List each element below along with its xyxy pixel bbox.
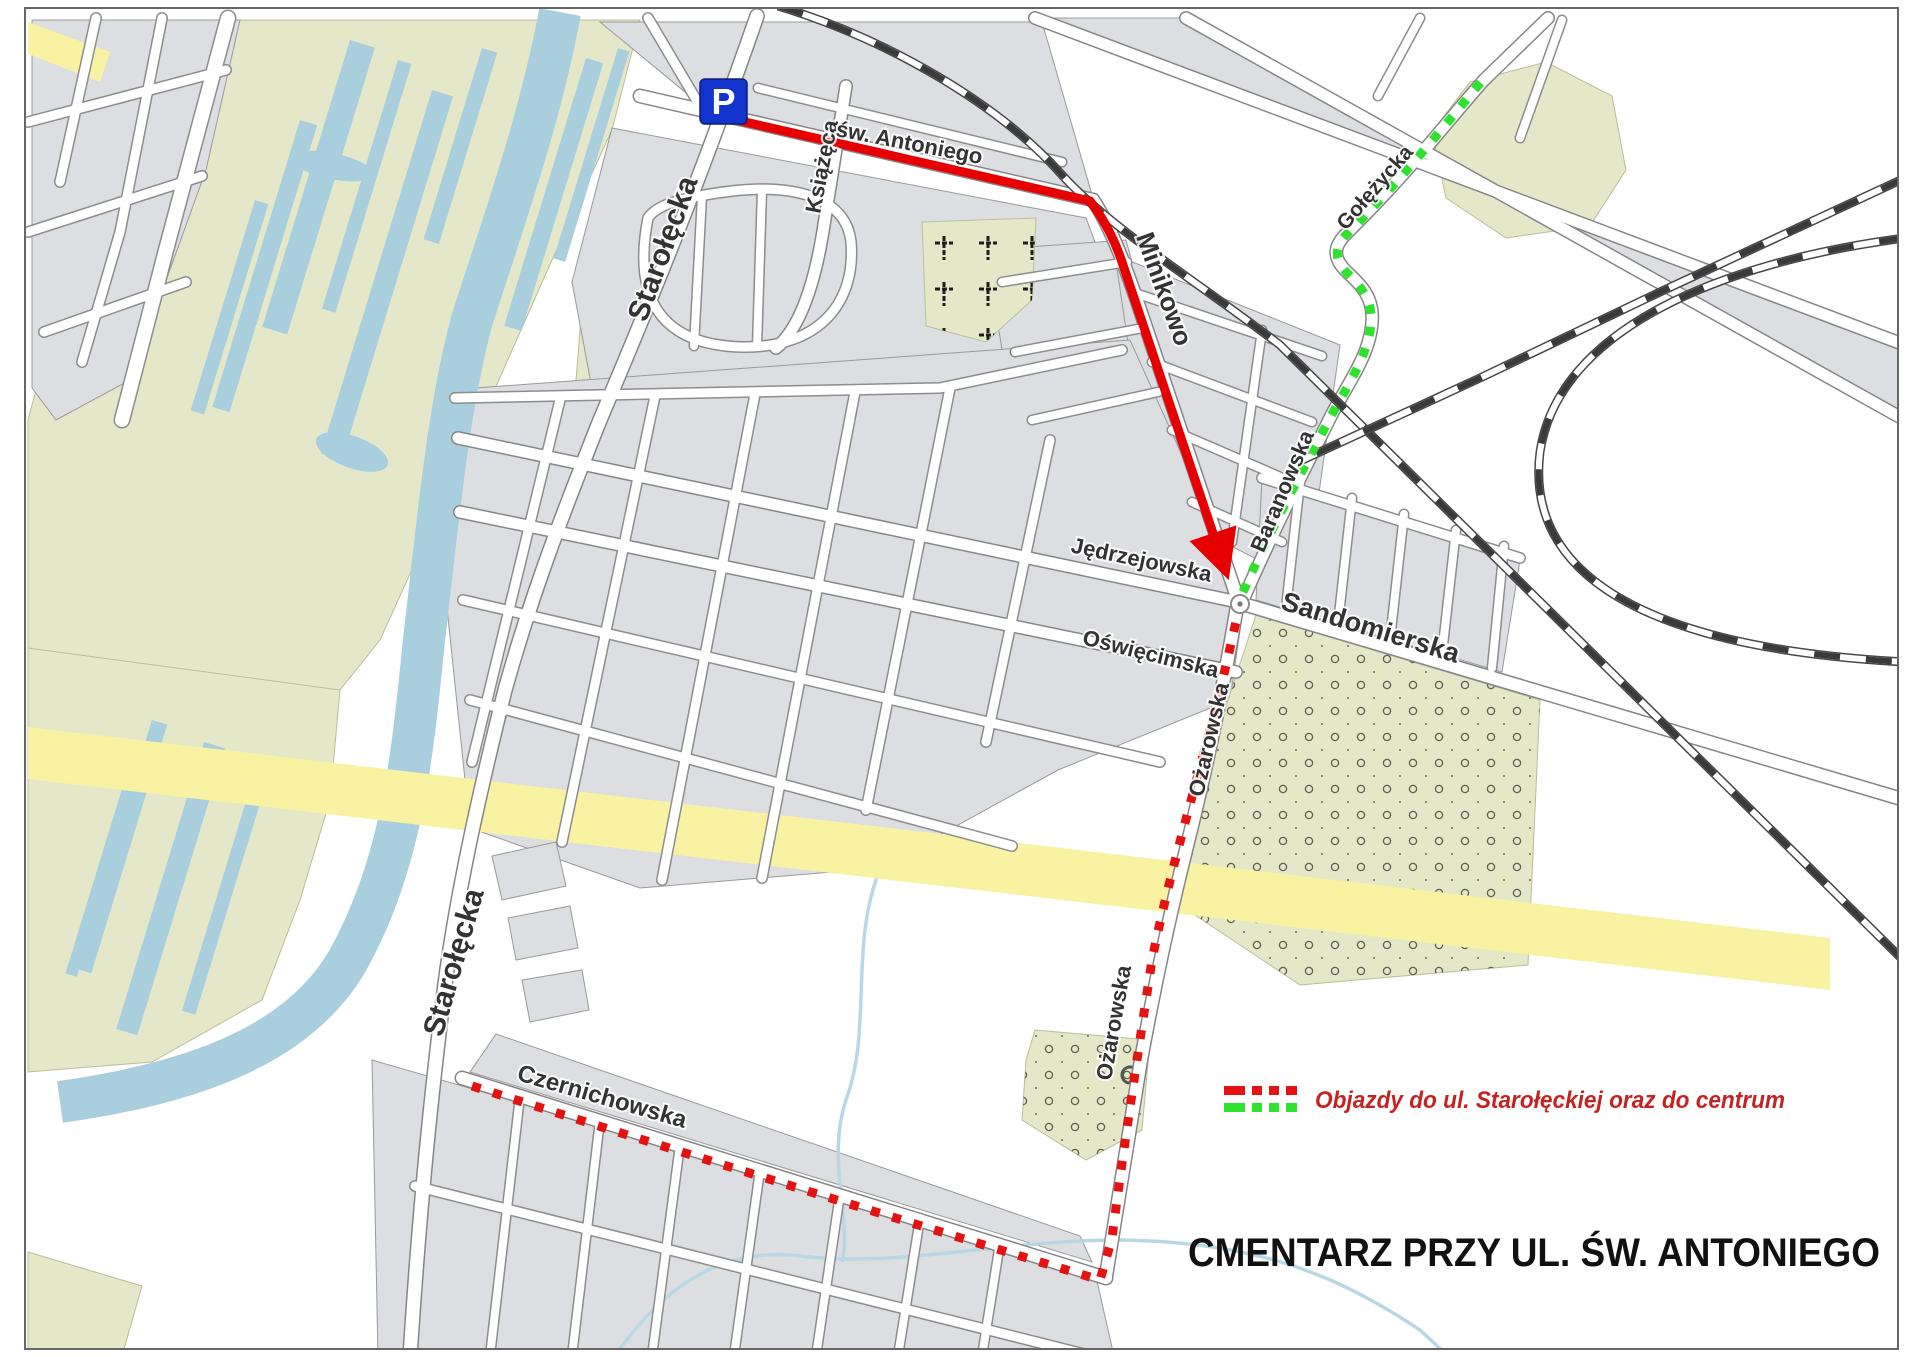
- legend-green-dash-swatch: [1224, 1103, 1297, 1112]
- parking-sign-letter: P: [711, 81, 735, 122]
- parking-sign: P: [700, 79, 747, 124]
- legend-label: Objazdy do ul. Starołęckiej oraz do cent…: [1315, 1087, 1785, 1114]
- map-title: CMENTARZ PRZY UL. ŚW. ANTONIEGO: [1188, 1229, 1880, 1275]
- legend-red-dash-swatch: [1224, 1086, 1297, 1095]
- city-map: Starołęcka Starołęcka Książęca św. Anton…: [0, 0, 1920, 1357]
- map-page: Starołęcka Starołęcka Książęca św. Anton…: [0, 0, 1920, 1357]
- junction-dot: [1237, 601, 1242, 606]
